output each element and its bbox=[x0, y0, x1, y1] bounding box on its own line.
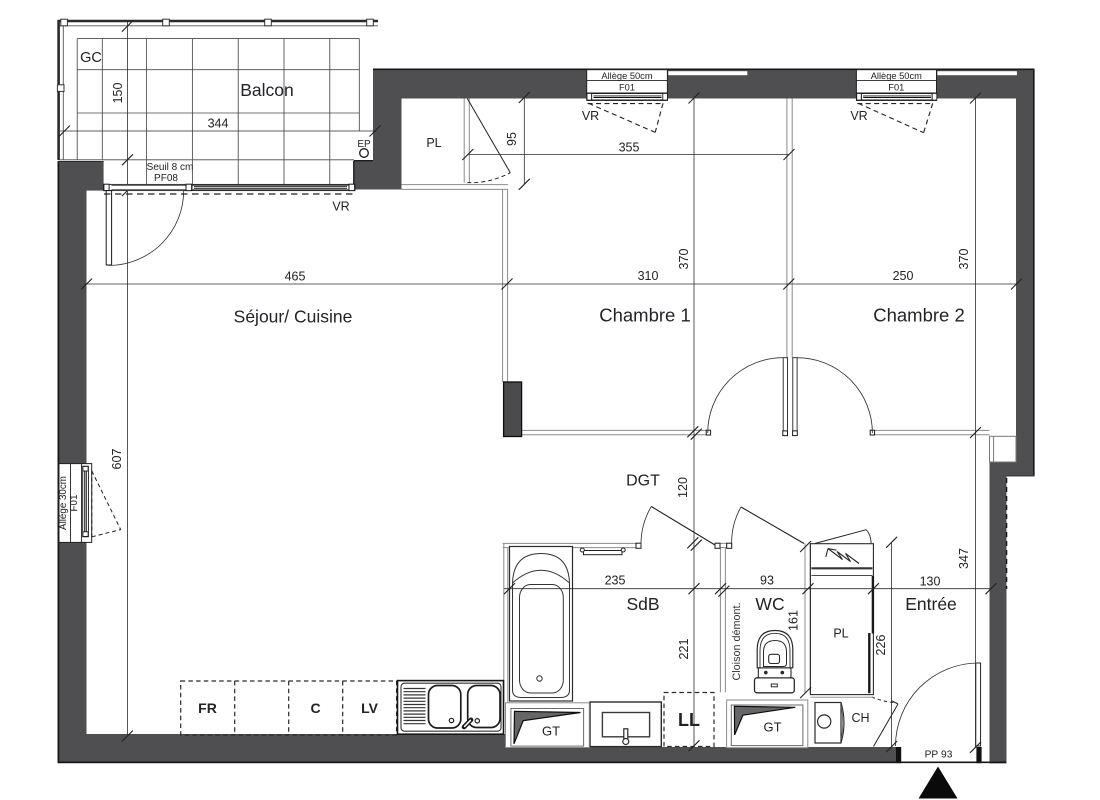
svg-text:235: 235 bbox=[605, 574, 626, 588]
svg-text:GT: GT bbox=[542, 724, 560, 739]
svg-text:150: 150 bbox=[111, 83, 125, 104]
svg-text:VR: VR bbox=[582, 109, 599, 123]
svg-text:LV: LV bbox=[361, 700, 379, 716]
svg-text:C: C bbox=[310, 700, 320, 716]
svg-text:120: 120 bbox=[676, 477, 690, 498]
svg-text:WC: WC bbox=[755, 594, 784, 614]
svg-text:Seuil 8 cm: Seuil 8 cm bbox=[147, 162, 194, 173]
svg-text:F01: F01 bbox=[619, 83, 635, 93]
svg-text:LL: LL bbox=[678, 710, 700, 730]
svg-text:DGT: DGT bbox=[626, 473, 660, 490]
svg-text:130: 130 bbox=[920, 575, 941, 589]
svg-text:Allège 50cm: Allège 50cm bbox=[601, 71, 652, 81]
svg-text:95: 95 bbox=[505, 132, 519, 146]
svg-text:GC: GC bbox=[80, 50, 102, 66]
svg-text:Balcon: Balcon bbox=[240, 80, 294, 100]
svg-text:355: 355 bbox=[619, 141, 640, 155]
svg-text:Séjour/ Cuisine: Séjour/ Cuisine bbox=[234, 307, 353, 327]
svg-text:SdB: SdB bbox=[626, 594, 659, 614]
svg-text:Entrée: Entrée bbox=[905, 594, 957, 614]
svg-text:226: 226 bbox=[874, 635, 888, 656]
svg-text:PL: PL bbox=[833, 627, 848, 641]
svg-text:607: 607 bbox=[110, 449, 124, 470]
svg-text:Cloison démont.: Cloison démont. bbox=[731, 602, 743, 680]
svg-text:221: 221 bbox=[677, 639, 691, 660]
svg-text:Chambre 2: Chambre 2 bbox=[873, 305, 965, 326]
svg-text:FR: FR bbox=[198, 700, 217, 716]
svg-text:Chambre 1: Chambre 1 bbox=[599, 305, 691, 326]
svg-text:CH: CH bbox=[851, 711, 869, 725]
svg-text:250: 250 bbox=[893, 269, 914, 283]
svg-text:VR: VR bbox=[332, 200, 349, 214]
svg-text:PP 93: PP 93 bbox=[925, 750, 953, 761]
svg-text:370: 370 bbox=[677, 249, 691, 270]
svg-text:Allège 50cm: Allège 50cm bbox=[871, 71, 922, 81]
svg-text:GT: GT bbox=[763, 720, 781, 735]
svg-text:161: 161 bbox=[787, 610, 801, 631]
svg-text:347: 347 bbox=[957, 548, 971, 569]
svg-text:VR: VR bbox=[850, 109, 867, 123]
svg-text:465: 465 bbox=[285, 270, 306, 284]
svg-text:F01: F01 bbox=[69, 495, 80, 512]
svg-text:344: 344 bbox=[208, 117, 229, 131]
svg-text:93: 93 bbox=[760, 574, 774, 588]
svg-text:PF08: PF08 bbox=[154, 173, 178, 184]
svg-text:370: 370 bbox=[957, 249, 971, 270]
svg-text:Allège 30cm: Allège 30cm bbox=[58, 476, 69, 530]
svg-text:F01: F01 bbox=[888, 83, 904, 93]
svg-text:EP: EP bbox=[357, 139, 371, 150]
svg-text:PL: PL bbox=[426, 136, 441, 150]
svg-text:310: 310 bbox=[638, 269, 659, 283]
